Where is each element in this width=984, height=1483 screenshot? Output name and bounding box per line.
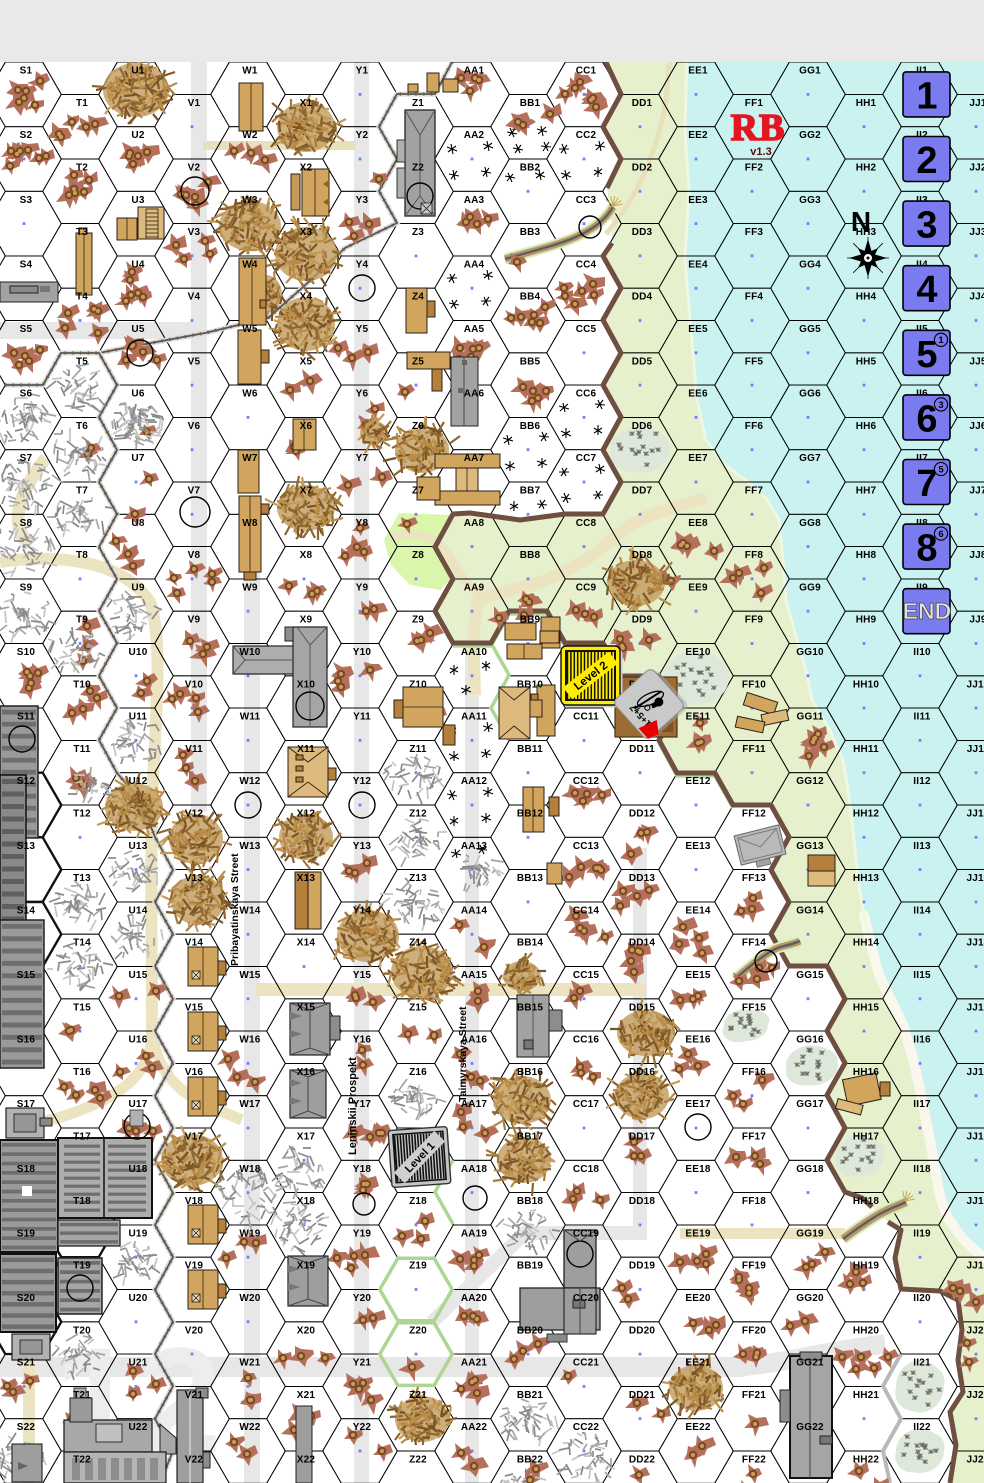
svg-text:U15: U15 (129, 970, 148, 981)
svg-text:S17: S17 (17, 1099, 36, 1110)
svg-text:BB13: BB13 (517, 873, 544, 884)
svg-text:1: 1 (916, 75, 937, 117)
svg-text:Z1: Z1 (412, 98, 424, 109)
svg-text:AA2: AA2 (464, 130, 485, 141)
svg-text:v1.3: v1.3 (750, 146, 771, 158)
svg-text:S7: S7 (20, 453, 33, 464)
svg-text:V13: V13 (185, 873, 204, 884)
svg-text:EE15: EE15 (685, 970, 711, 981)
svg-text:II22: II22 (913, 1422, 931, 1433)
svg-text:DD12: DD12 (629, 809, 656, 820)
svg-text:W4: W4 (242, 259, 258, 270)
svg-text:S1: S1 (20, 66, 33, 77)
svg-text:W11: W11 (240, 712, 261, 723)
svg-text:Z12: Z12 (409, 809, 427, 820)
svg-text:EE4: EE4 (688, 259, 708, 270)
svg-text:HH15: HH15 (853, 1002, 880, 1013)
svg-text:CC9: CC9 (576, 582, 597, 593)
svg-text:X4: X4 (300, 292, 313, 303)
svg-text:II12: II12 (913, 776, 931, 787)
svg-text:S15: S15 (17, 970, 36, 981)
svg-text:DD22: DD22 (629, 1455, 656, 1466)
svg-text:Y21: Y21 (353, 1358, 372, 1369)
svg-text:CC19: CC19 (573, 1228, 600, 1239)
svg-text:BB17: BB17 (517, 1132, 544, 1143)
svg-text:W10: W10 (239, 647, 260, 658)
svg-text:DD13: DD13 (629, 873, 656, 884)
svg-text:GG19: GG19 (796, 1228, 824, 1239)
svg-text:EE12: EE12 (685, 776, 711, 787)
svg-text:V11: V11 (185, 744, 203, 755)
svg-text:DD1: DD1 (632, 98, 653, 109)
svg-text:W7: W7 (242, 453, 258, 464)
svg-text:AA22: AA22 (461, 1422, 488, 1433)
svg-text:BB2: BB2 (520, 163, 541, 174)
svg-text:T13: T13 (73, 873, 91, 884)
svg-text:FF7: FF7 (745, 486, 764, 497)
svg-text:X20: X20 (297, 1325, 316, 1336)
svg-text:Z6: Z6 (412, 421, 424, 432)
svg-text:HH5: HH5 (856, 356, 877, 367)
svg-text:EE9: EE9 (688, 582, 708, 593)
svg-text:GG5: GG5 (799, 324, 821, 335)
svg-text:HH11: HH11 (853, 744, 879, 755)
svg-text:II13: II13 (913, 841, 931, 852)
svg-text:AA5: AA5 (464, 324, 485, 335)
svg-text:EE13: EE13 (685, 841, 711, 852)
svg-text:X15: X15 (297, 1002, 316, 1013)
svg-text:Z20: Z20 (409, 1325, 427, 1336)
svg-text:CC5: CC5 (576, 324, 597, 335)
svg-text:FF20: FF20 (742, 1325, 766, 1336)
svg-text:GG6: GG6 (799, 389, 821, 400)
svg-text:CC8: CC8 (576, 518, 597, 529)
svg-text:S22: S22 (17, 1422, 36, 1433)
svg-text:AA12: AA12 (461, 776, 488, 787)
svg-text:T21: T21 (73, 1390, 91, 1401)
svg-text:AA8: AA8 (464, 518, 485, 529)
svg-text:T10: T10 (73, 679, 91, 690)
svg-text:T11: T11 (73, 744, 91, 755)
svg-text:U1: U1 (131, 66, 144, 77)
svg-text:DD8: DD8 (632, 550, 653, 561)
svg-text:S2: S2 (20, 130, 33, 141)
svg-text:Pribayatinskaya Street: Pribayatinskaya Street (229, 853, 241, 966)
svg-text:Y1: Y1 (356, 66, 369, 77)
svg-text:JJ1: JJ1 (969, 98, 984, 109)
svg-text:EE2: EE2 (688, 130, 708, 141)
svg-text:V12: V12 (185, 809, 204, 820)
svg-text:GG9: GG9 (799, 582, 821, 593)
svg-text:DD15: DD15 (629, 1002, 656, 1013)
svg-text:U19: U19 (129, 1228, 148, 1239)
svg-text:CC15: CC15 (573, 970, 600, 981)
svg-text:X2: X2 (300, 163, 313, 174)
svg-text:T14: T14 (73, 938, 91, 949)
svg-text:U7: U7 (131, 453, 144, 464)
svg-text:FF14: FF14 (742, 938, 766, 949)
svg-text:Z4: Z4 (412, 292, 424, 303)
svg-text:Z14: Z14 (409, 938, 427, 949)
svg-text:CC21: CC21 (573, 1358, 600, 1369)
svg-text:DD7: DD7 (632, 486, 653, 497)
svg-text:U12: U12 (129, 776, 148, 787)
svg-text:S18: S18 (17, 1164, 36, 1175)
svg-text:CC13: CC13 (573, 841, 600, 852)
svg-text:V6: V6 (188, 421, 201, 432)
svg-text:V1: V1 (188, 98, 201, 109)
svg-text:W12: W12 (239, 776, 260, 787)
svg-text:BB6: BB6 (520, 421, 541, 432)
svg-text:S8: S8 (20, 518, 33, 529)
svg-text:W18: W18 (239, 1164, 260, 1175)
svg-text:FF18: FF18 (742, 1196, 766, 1207)
svg-text:Y16: Y16 (353, 1035, 372, 1046)
svg-text:JJ10: JJ10 (966, 679, 984, 690)
svg-text:JJ9: JJ9 (969, 615, 984, 626)
svg-text:BB8: BB8 (520, 550, 541, 561)
svg-text:EE11: EE11 (686, 712, 711, 723)
svg-text:X11: X11 (297, 744, 315, 755)
svg-text:EE8: EE8 (688, 518, 708, 529)
svg-text:DD5: DD5 (632, 356, 653, 367)
svg-text:Y3: Y3 (356, 195, 369, 206)
svg-text:CC12: CC12 (573, 776, 600, 787)
svg-text:HH12: HH12 (853, 809, 880, 820)
svg-text:W3: W3 (242, 195, 258, 206)
svg-text:JJ17: JJ17 (966, 1132, 984, 1143)
svg-text:EE19: EE19 (685, 1228, 711, 1239)
svg-text:X3: X3 (300, 227, 313, 238)
svg-text:CC17: CC17 (573, 1099, 600, 1110)
svg-text:Z13: Z13 (409, 873, 427, 884)
svg-text:T6: T6 (76, 421, 88, 432)
svg-text:AA6: AA6 (464, 389, 485, 400)
svg-text:V14: V14 (185, 938, 204, 949)
svg-text:II21: II21 (913, 1358, 931, 1369)
svg-text:Leninskii Prospekt: Leninskii Prospekt (347, 1057, 359, 1155)
svg-text:X1: X1 (300, 98, 313, 109)
svg-text:W13: W13 (239, 841, 260, 852)
svg-text:JJ3: JJ3 (969, 227, 984, 238)
svg-text:CC7: CC7 (576, 453, 597, 464)
svg-text:FF9: FF9 (745, 615, 764, 626)
svg-text:FF17: FF17 (742, 1132, 766, 1143)
svg-text:Y18: Y18 (353, 1164, 372, 1175)
svg-text:T16: T16 (73, 1067, 91, 1078)
svg-text:GG14: GG14 (796, 905, 824, 916)
svg-text:AA14: AA14 (461, 905, 488, 916)
svg-text:AA4: AA4 (464, 259, 485, 270)
svg-text:GG4: GG4 (799, 259, 821, 270)
svg-text:JJ19: JJ19 (966, 1261, 984, 1272)
svg-text:EE22: EE22 (685, 1422, 711, 1433)
svg-text:JJ14: JJ14 (966, 938, 984, 949)
svg-text:Z8: Z8 (412, 550, 424, 561)
svg-text:S19: S19 (17, 1228, 36, 1239)
svg-text:FF12: FF12 (742, 809, 766, 820)
svg-text:S20: S20 (17, 1293, 36, 1304)
svg-text:AA18: AA18 (461, 1164, 488, 1175)
svg-text:END: END (903, 598, 952, 624)
svg-text:II19: II19 (913, 1228, 931, 1239)
svg-text:W20: W20 (239, 1293, 260, 1304)
svg-text:CC2: CC2 (576, 130, 597, 141)
svg-text:GG17: GG17 (796, 1099, 824, 1110)
svg-text:U14: U14 (129, 905, 148, 916)
svg-text:AA21: AA21 (461, 1358, 488, 1369)
svg-text:AA7: AA7 (464, 453, 485, 464)
svg-text:CC6: CC6 (576, 389, 597, 400)
svg-text:DD2: DD2 (632, 163, 653, 174)
svg-text:CC14: CC14 (573, 905, 600, 916)
svg-text:V8: V8 (188, 550, 201, 561)
svg-text:II16: II16 (913, 1035, 931, 1046)
svg-text:Z10: Z10 (409, 679, 427, 690)
svg-text:II11: II11 (914, 712, 931, 723)
svg-text:GG10: GG10 (796, 647, 824, 658)
svg-text:W17: W17 (239, 1099, 260, 1110)
svg-text:S14: S14 (17, 905, 36, 916)
svg-text:Y2: Y2 (356, 130, 369, 141)
svg-text:BB14: BB14 (517, 938, 544, 949)
svg-text:3: 3 (916, 205, 937, 247)
svg-text:HH8: HH8 (856, 550, 877, 561)
svg-text:HH22: HH22 (853, 1455, 880, 1466)
svg-text:V7: V7 (188, 486, 201, 497)
svg-text:HH17: HH17 (853, 1132, 880, 1143)
svg-text:JJ18: JJ18 (966, 1196, 984, 1207)
svg-text:BB12: BB12 (517, 809, 544, 820)
svg-text:U21: U21 (129, 1358, 148, 1369)
svg-text:W16: W16 (239, 1035, 260, 1046)
svg-text:Y9: Y9 (356, 582, 369, 593)
svg-text:T12: T12 (73, 809, 91, 820)
svg-text:U17: U17 (129, 1099, 148, 1110)
svg-text:5: 5 (938, 464, 944, 475)
svg-text:DD3: DD3 (632, 227, 653, 238)
svg-text:JJ5: JJ5 (969, 356, 984, 367)
svg-text:FF8: FF8 (745, 550, 764, 561)
svg-text:BB22: BB22 (517, 1455, 544, 1466)
svg-text:HH14: HH14 (853, 938, 880, 949)
svg-text:BB4: BB4 (520, 292, 541, 303)
svg-text:DD19: DD19 (629, 1261, 656, 1272)
svg-text:W6: W6 (242, 389, 258, 400)
svg-text:BB20: BB20 (517, 1325, 544, 1336)
svg-text:FF11: FF11 (742, 744, 766, 755)
svg-text:X9: X9 (300, 615, 313, 626)
svg-text:S3: S3 (20, 195, 33, 206)
svg-text:AA10: AA10 (461, 647, 488, 658)
svg-text:Y5: Y5 (356, 324, 369, 335)
svg-text:U4: U4 (131, 259, 144, 270)
svg-text:HH9: HH9 (856, 615, 877, 626)
svg-text:Taimyrskaya Street: Taimyrskaya Street (457, 1006, 469, 1102)
svg-text:Z18: Z18 (409, 1196, 427, 1207)
svg-text:6: 6 (938, 529, 943, 540)
svg-text:GG3: GG3 (799, 195, 821, 206)
svg-text:FF10: FF10 (742, 679, 766, 690)
svg-text:Z3: Z3 (412, 227, 424, 238)
svg-text:EE16: EE16 (685, 1035, 711, 1046)
svg-text:S4: S4 (20, 259, 33, 270)
svg-text:U5: U5 (131, 324, 144, 335)
svg-text:Z19: Z19 (409, 1261, 427, 1272)
svg-text:U8: U8 (131, 518, 144, 529)
svg-text:BB21: BB21 (517, 1390, 544, 1401)
svg-text:Z16: Z16 (409, 1067, 427, 1078)
svg-text:HH20: HH20 (853, 1325, 880, 1336)
svg-text:U10: U10 (129, 647, 148, 658)
svg-text:GG20: GG20 (796, 1293, 824, 1304)
svg-text:V22: V22 (185, 1455, 204, 1466)
svg-text:EE21: EE21 (685, 1358, 711, 1369)
svg-text:Z9: Z9 (412, 615, 424, 626)
svg-text:Y10: Y10 (353, 647, 372, 658)
svg-text:DD14: DD14 (629, 938, 656, 949)
svg-text:X17: X17 (297, 1132, 316, 1143)
svg-text:W19: W19 (239, 1228, 260, 1239)
svg-text:GG2: GG2 (799, 130, 821, 141)
svg-text:HH18: HH18 (853, 1196, 880, 1207)
svg-text:X6: X6 (300, 421, 313, 432)
svg-text:X7: X7 (300, 486, 313, 497)
svg-text:S16: S16 (17, 1035, 36, 1046)
svg-text:DD9: DD9 (632, 615, 653, 626)
svg-text:II10: II10 (913, 647, 931, 658)
svg-text:EE14: EE14 (685, 905, 711, 916)
svg-text:W1: W1 (242, 66, 258, 77)
svg-text:GG21: GG21 (796, 1358, 824, 1369)
svg-text:FF5: FF5 (745, 356, 764, 367)
svg-text:JJ13: JJ13 (966, 873, 984, 884)
svg-text:BB1: BB1 (520, 98, 541, 109)
svg-text:BB15: BB15 (517, 1002, 544, 1013)
svg-text:2: 2 (916, 140, 937, 182)
svg-text:Y7: Y7 (356, 453, 369, 464)
svg-text:U6: U6 (131, 389, 144, 400)
svg-text:T18: T18 (73, 1196, 91, 1207)
svg-text:RB: RB (731, 107, 786, 149)
svg-text:Y14: Y14 (353, 905, 372, 916)
svg-text:T7: T7 (76, 486, 88, 497)
svg-text:DD16: DD16 (629, 1067, 656, 1078)
svg-text:AA19: AA19 (461, 1228, 488, 1239)
svg-text:JJ8: JJ8 (969, 550, 984, 561)
svg-text:X22: X22 (297, 1455, 316, 1466)
svg-text:EE17: EE17 (685, 1099, 711, 1110)
svg-text:CC1: CC1 (576, 66, 597, 77)
svg-text:Z5: Z5 (412, 356, 424, 367)
svg-text:AA1: AA1 (464, 66, 485, 77)
svg-text:EE7: EE7 (688, 453, 708, 464)
svg-text:S13: S13 (17, 841, 36, 852)
svg-text:V3: V3 (188, 227, 201, 238)
svg-text:W5: W5 (242, 324, 258, 335)
svg-text:EE10: EE10 (685, 647, 711, 658)
svg-text:JJ20: JJ20 (966, 1325, 984, 1336)
svg-text:Y4: Y4 (356, 259, 369, 270)
svg-text:GG15: GG15 (796, 970, 824, 981)
svg-text:V2: V2 (188, 163, 201, 174)
svg-text:EE3: EE3 (688, 195, 708, 206)
svg-text:FF4: FF4 (745, 292, 764, 303)
svg-text:FF3: FF3 (745, 227, 764, 238)
svg-text:V4: V4 (188, 292, 201, 303)
svg-text:U3: U3 (131, 195, 144, 206)
svg-text:BB3: BB3 (520, 227, 541, 238)
svg-text:FF2: FF2 (745, 163, 764, 174)
svg-text:FF13: FF13 (742, 873, 766, 884)
svg-text:V15: V15 (185, 1002, 204, 1013)
svg-text:JJ6: JJ6 (969, 421, 984, 432)
svg-text:S9: S9 (20, 582, 33, 593)
svg-text:V9: V9 (188, 615, 201, 626)
svg-text:II14: II14 (913, 905, 931, 916)
svg-text:FF19: FF19 (742, 1261, 766, 1272)
svg-text:II15: II15 (913, 970, 931, 981)
svg-text:U20: U20 (129, 1293, 148, 1304)
svg-text:T15: T15 (73, 1002, 91, 1013)
svg-text:X14: X14 (297, 938, 316, 949)
svg-text:X16: X16 (297, 1067, 316, 1078)
svg-text:T22: T22 (73, 1455, 91, 1466)
svg-text:3: 3 (938, 400, 943, 411)
svg-text:DD20: DD20 (629, 1325, 656, 1336)
svg-text:HH10: HH10 (853, 679, 880, 690)
svg-text:JJ15: JJ15 (966, 1002, 984, 1013)
svg-text:W9: W9 (242, 582, 258, 593)
svg-text:AA11: AA11 (461, 712, 487, 723)
svg-text:Z7: Z7 (412, 486, 424, 497)
svg-text:HH19: HH19 (853, 1261, 880, 1272)
svg-text:EE18: EE18 (685, 1164, 711, 1175)
svg-text:W15: W15 (239, 970, 260, 981)
svg-text:X21: X21 (297, 1390, 316, 1401)
svg-text:V19: V19 (185, 1261, 204, 1272)
svg-text:V17: V17 (185, 1132, 204, 1143)
svg-text:JJ22: JJ22 (966, 1455, 984, 1466)
svg-text:HH4: HH4 (856, 292, 877, 303)
svg-text:DD4: DD4 (632, 292, 653, 303)
svg-text:X19: X19 (297, 1261, 316, 1272)
svg-text:CC18: CC18 (573, 1164, 600, 1175)
svg-text:U13: U13 (129, 841, 148, 852)
svg-text:GG7: GG7 (799, 453, 821, 464)
svg-text:V20: V20 (185, 1325, 204, 1336)
svg-text:CC20: CC20 (573, 1293, 600, 1304)
svg-text:X12: X12 (297, 809, 316, 820)
svg-text:T3: T3 (76, 227, 88, 238)
svg-text:4: 4 (916, 269, 937, 311)
svg-text:Y11: Y11 (353, 712, 371, 723)
svg-text:T20: T20 (73, 1325, 91, 1336)
svg-text:V18: V18 (185, 1196, 204, 1207)
svg-text:FF6: FF6 (745, 421, 764, 432)
svg-text:X10: X10 (297, 679, 316, 690)
svg-text:T19: T19 (73, 1261, 91, 1272)
svg-text:BB18: BB18 (517, 1196, 544, 1207)
svg-text:AA15: AA15 (461, 970, 488, 981)
svg-text:T5: T5 (76, 356, 88, 367)
svg-text:BB9: BB9 (520, 615, 541, 626)
svg-text:Y19: Y19 (353, 1228, 372, 1239)
svg-text:HH1: HH1 (856, 98, 877, 109)
svg-text:JJ7: JJ7 (969, 486, 984, 497)
svg-text:S11: S11 (17, 712, 35, 723)
svg-text:EE6: EE6 (688, 389, 708, 400)
